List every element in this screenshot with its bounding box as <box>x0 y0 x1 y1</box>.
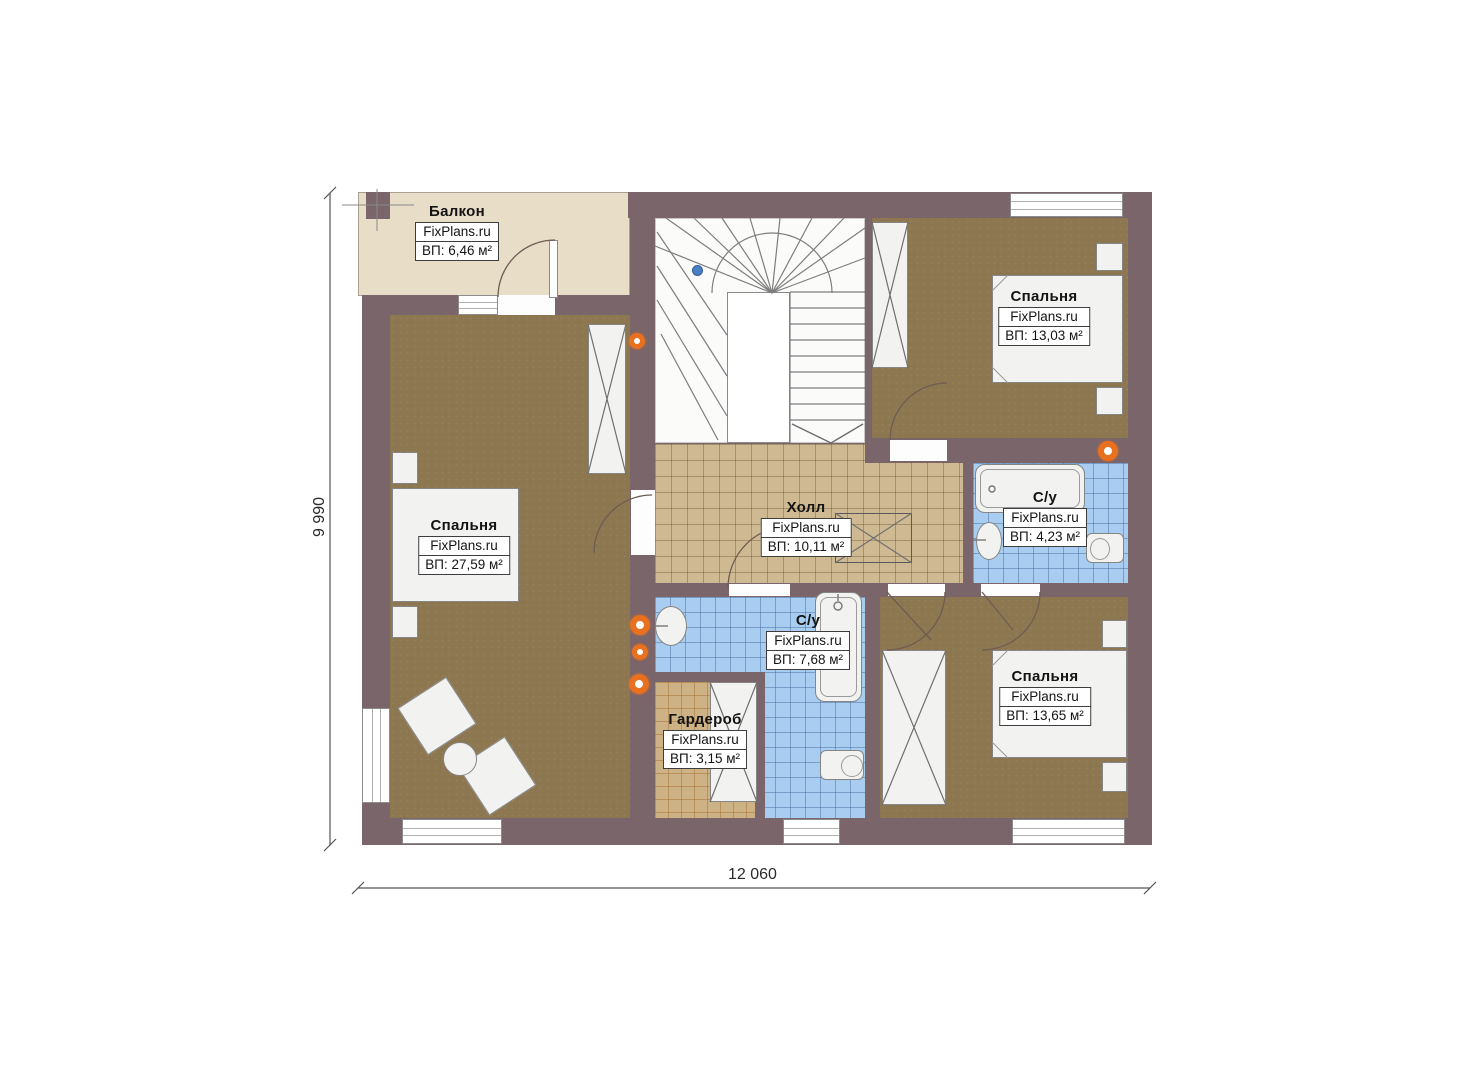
room-name: Спальня <box>998 288 1090 305</box>
wall-hall-bathroom <box>963 463 973 583</box>
room-area: ВП: 13,65 м² <box>999 706 1091 726</box>
brand-label: FixPlans.ru <box>418 536 510 556</box>
wall-bathroom-bedroom <box>865 597 880 818</box>
room-label-wardrobe: Гардероб FixPlans.ruВП: 3,15 м² <box>663 711 747 769</box>
brand-label: FixPlans.ru <box>998 307 1090 327</box>
round-table <box>443 742 477 776</box>
door-opening-bedroom-left <box>631 490 655 555</box>
window <box>1012 819 1125 844</box>
brand-label: FixPlans.ru <box>999 687 1091 707</box>
window <box>1010 193 1123 217</box>
nightstand <box>392 452 418 484</box>
brand-label: FixPlans.ru <box>761 518 852 538</box>
room-area: ВП: 7,68 м² <box>766 650 850 670</box>
wall-balcony-right <box>630 192 655 315</box>
washbasin <box>655 606 687 646</box>
radiator-icon <box>629 333 645 349</box>
washbasin <box>976 522 1002 560</box>
door-leaf-balcony <box>549 240 558 298</box>
door-opening-bedroom-bottom-right <box>888 584 945 596</box>
room-area: ВП: 4,23 м² <box>1003 527 1087 547</box>
nightstand <box>392 606 418 638</box>
wall-corner-block <box>366 192 390 219</box>
stair-marker-dot <box>692 265 703 276</box>
room-name: Гардероб <box>663 711 747 728</box>
room-name: С/у <box>1003 489 1087 506</box>
stair-void <box>727 292 790 443</box>
wardrobe-cabinet <box>588 324 626 474</box>
door-opening-balcony <box>498 295 555 315</box>
window <box>458 295 498 315</box>
wall-stair-bedroom <box>865 218 872 443</box>
brand-label: FixPlans.ru <box>415 222 499 242</box>
room-label-bathroom-right: С/у FixPlans.ruВП: 4,23 м² <box>1003 489 1087 547</box>
radiator-icon <box>629 674 649 694</box>
room-name: Холл <box>761 499 852 516</box>
room-label-bedroom-left: Спальня FixPlans.ruВП: 27,59 м² <box>418 517 510 575</box>
nightstand <box>1102 762 1127 792</box>
window <box>362 708 390 803</box>
radiator-icon <box>630 615 650 635</box>
toilet <box>1086 533 1124 563</box>
room-area: ВП: 6,46 м² <box>415 241 499 261</box>
wall-right <box>1128 192 1152 845</box>
door-opening-bedroom-top-right <box>890 440 947 461</box>
radiator-icon <box>1098 441 1118 461</box>
nightstand <box>1096 387 1123 415</box>
room-area: ВП: 10,11 м² <box>761 537 852 557</box>
room-name: Спальня <box>999 668 1091 685</box>
room-label-hall: Холл FixPlans.ruВП: 10,11 м² <box>761 499 852 557</box>
room-label-balcony: Балкон FixPlans.ruВП: 6,46 м² <box>415 203 499 261</box>
radiator-icon <box>632 644 648 660</box>
door-opening-bathroom-middle <box>729 584 790 596</box>
wall-wardrobe-top <box>655 672 765 682</box>
room-name: Балкон <box>415 203 499 220</box>
wardrobe-cabinet <box>882 650 946 805</box>
wardrobe-cabinet <box>872 222 908 368</box>
window <box>402 819 502 844</box>
brand-label: FixPlans.ru <box>663 730 747 750</box>
room-label-bedroom-bottom-right: Спальня FixPlans.ruВП: 13,65 м² <box>999 668 1091 726</box>
wall-bedroom-left-right <box>630 315 655 818</box>
room-area: ВП: 3,15 м² <box>663 749 747 769</box>
brand-label: FixPlans.ru <box>766 631 850 651</box>
floor-plan: Балкон FixPlans.ruВП: 6,46 м² Спальня Fi… <box>0 0 1474 1080</box>
nightstand <box>1102 620 1127 648</box>
room-name: Спальня <box>418 517 510 534</box>
dimension-width-label: 12 060 <box>728 866 777 884</box>
window <box>783 819 840 844</box>
room-area: ВП: 27,59 м² <box>418 555 510 575</box>
room-label-bedroom-top-right: Спальня FixPlans.ruВП: 13,03 м² <box>998 288 1090 346</box>
room-label-bathroom-middle: С/у FixPlans.ruВП: 7,68 м² <box>766 612 850 670</box>
room-name: С/у <box>766 612 850 629</box>
room-area: ВП: 13,03 м² <box>998 326 1090 346</box>
nightstand <box>1096 243 1123 271</box>
toilet <box>820 750 864 780</box>
dimension-height-label: 9 990 <box>311 497 329 537</box>
brand-label: FixPlans.ru <box>1003 508 1087 528</box>
door-opening-bathroom-right <box>981 584 1040 596</box>
